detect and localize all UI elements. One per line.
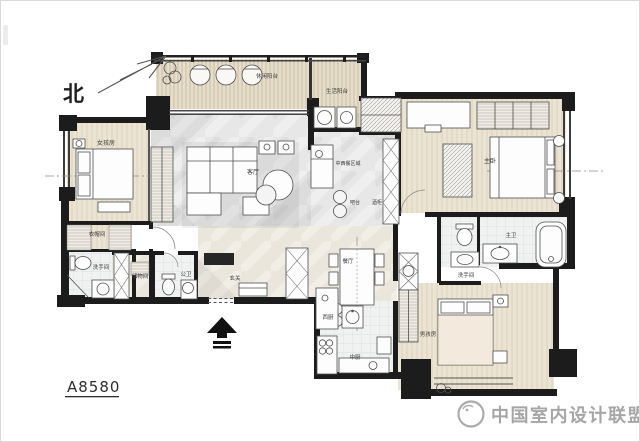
north-arrow-icon (98, 56, 166, 93)
label-foyer: 玄关 (229, 274, 241, 282)
label-bar: 吧台 (350, 199, 360, 206)
label-wine-cabinet: 酒柜 (372, 199, 382, 206)
edge-smudge (3, 25, 8, 45)
label-leisure-balcony: 休闲阳台 (256, 72, 279, 80)
label-living-room: 客厅 (247, 168, 259, 176)
label-dining-zone: 中西餐区域 (335, 160, 360, 167)
cloak-shelf-right (109, 225, 131, 250)
label-boys-room: 男孩房 (420, 330, 437, 338)
entrance-arrow-icon (207, 317, 237, 349)
master-desk (407, 102, 470, 128)
floor-plan-svg: 北 A8580 休闲阳台 生活阳台 女孩房 客厅 中西餐区域 吧台 酒柜 餐厅 … (1, 1, 640, 442)
living-sofa-set (182, 141, 299, 228)
drawing-number: A8580 (67, 378, 120, 396)
drawing-number-block: A8580 (65, 378, 120, 397)
watermark: 中国室内设计联盟 中国室内设计联盟 (459, 402, 640, 428)
label-master-bath: 主卫 (505, 231, 517, 239)
leisure-balcony-floor (156, 59, 309, 109)
label-master-bedroom: 主卧 (484, 157, 496, 165)
washer-dryer (314, 107, 356, 128)
label-utility-balcony: 生活阳台 (326, 87, 349, 95)
bathtub (536, 222, 566, 267)
label-guest-bath: 公卫 (180, 271, 192, 278)
label-chinese-kitchen: 中厨 (349, 353, 361, 361)
cloak-shelf-left (67, 225, 91, 250)
label-dining-room: 餐厅 (342, 257, 354, 265)
entrance-opening (208, 299, 234, 303)
corridor-cabinet (286, 248, 308, 299)
floor-plan-page: 北 A8580 休闲阳台 生活阳台 女孩房 客厅 中西餐区域 吧台 酒柜 餐厅 … (0, 0, 640, 442)
tv-console (443, 144, 472, 197)
label-storage: 储物间 (132, 272, 149, 280)
label-washroom-right: 洗手间 (458, 271, 475, 279)
label-washroom-left: 洗手间 (93, 263, 110, 271)
label-western-kitchen: 西厨 (322, 314, 334, 321)
watermark-text: 中国室内设计联盟 (491, 405, 640, 427)
wine-cabinet-unit (383, 139, 399, 224)
north-label: 北 (63, 82, 84, 106)
label-cloakroom: 衣帽间 (89, 230, 106, 238)
label-girls-room: 女孩房 (97, 139, 115, 147)
foyer-bench (239, 283, 267, 296)
